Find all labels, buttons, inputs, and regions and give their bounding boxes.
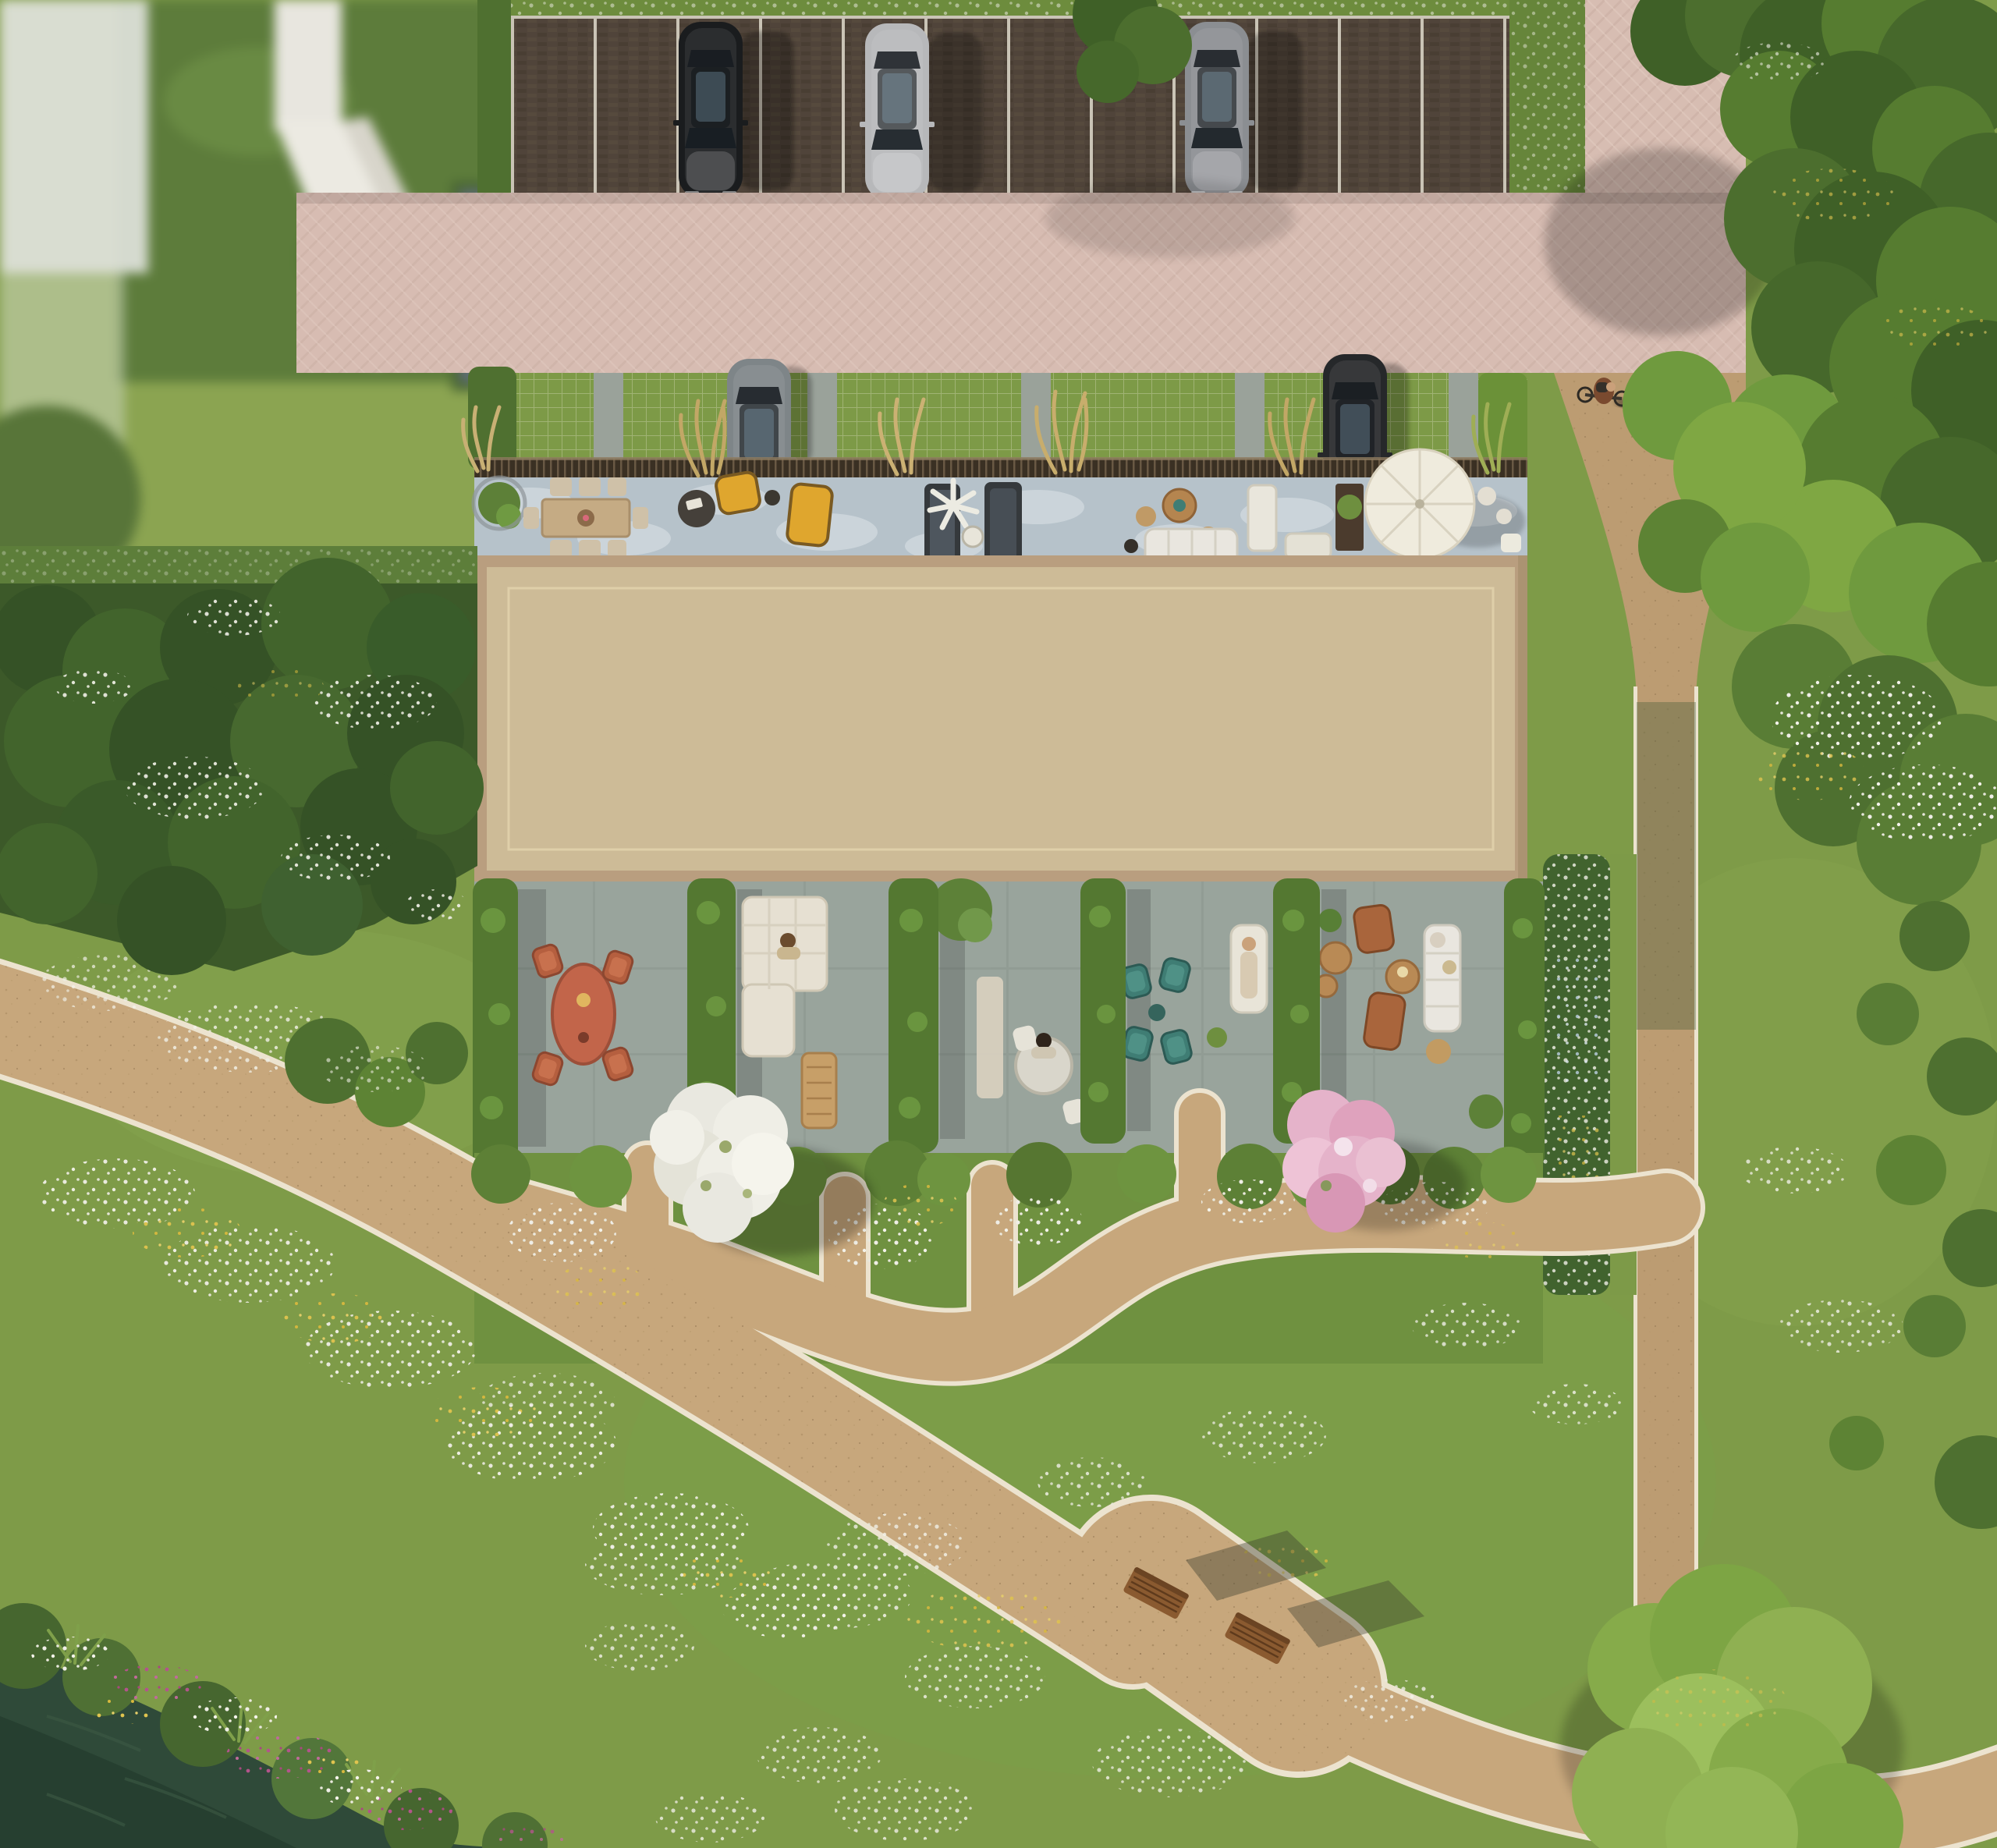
person-body: [777, 947, 800, 959]
site-plan-canvas: [0, 0, 1997, 1848]
person-head: [1242, 937, 1256, 951]
roof-surface: [487, 567, 1515, 871]
person-head: [780, 933, 796, 949]
white-building-edge: [0, 0, 148, 273]
path-tree-shade: [1637, 702, 1696, 1030]
balcony-railing: [474, 457, 1527, 479]
aerial-site-plan: [0, 0, 1997, 1848]
road-surface: [296, 193, 1746, 373]
person-head: [1036, 1033, 1052, 1048]
concrete-divider: [594, 373, 623, 468]
concrete-divider: [1235, 373, 1265, 468]
pouf: [1426, 1039, 1451, 1064]
person-body: [1031, 1047, 1056, 1059]
parked-car-silver: [860, 23, 935, 200]
building-roof: [474, 555, 1527, 881]
left-thicket: [0, 546, 484, 975]
person-body: [1240, 952, 1257, 998]
parked-car-black: [673, 22, 748, 198]
cyclist-head: [1606, 382, 1616, 392]
parking-lot: [511, 16, 1509, 200]
wood-lounger: [802, 1053, 836, 1128]
white-footpath: [275, 0, 342, 131]
outdoor-mat: [977, 977, 1003, 1098]
